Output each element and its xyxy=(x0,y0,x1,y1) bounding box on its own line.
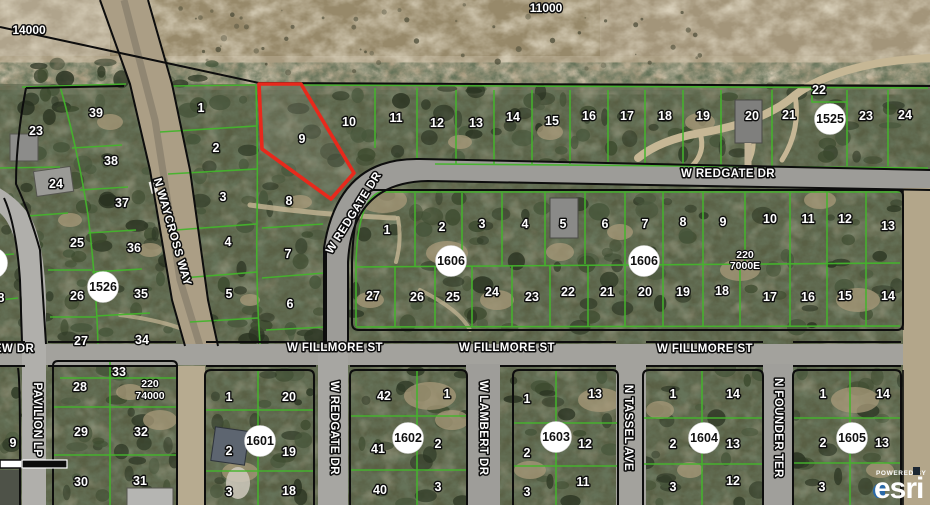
parcel-number-label: 14 xyxy=(726,387,740,401)
parcel-number-label: 13 xyxy=(726,437,740,451)
parcel-number-label: 6 xyxy=(287,297,294,311)
parcel-number-label: 13 xyxy=(469,116,483,130)
parcel-number-label: 29 xyxy=(74,425,88,439)
parcel-number-label: 1 xyxy=(198,101,205,115)
parcel-number-label: 31 xyxy=(133,474,147,488)
parcel-number-label: 13 xyxy=(588,387,602,401)
parcel-number-label: 42 xyxy=(377,389,391,403)
subdivision-circle: 1601 xyxy=(245,426,276,457)
parcel-number-label: 34 xyxy=(135,333,149,347)
subdivision-number: 1525 xyxy=(816,112,844,126)
scale-bar xyxy=(0,460,67,468)
parcel-number-label: 24 xyxy=(485,285,499,299)
parcel-number-label: 32 xyxy=(134,425,148,439)
parcel-number-label: 26 xyxy=(70,289,84,303)
street-name-label: N TASSEL AVE xyxy=(622,385,634,471)
parcel-number-label: 20 xyxy=(282,390,296,404)
parcel-number-label: 35 xyxy=(134,287,148,301)
subdivision-number: 1603 xyxy=(542,430,570,444)
subdivision-circle: 1606 xyxy=(629,246,660,277)
parcel-number-label: 33 xyxy=(112,365,126,379)
parcel-number-label: 20 xyxy=(638,285,652,299)
parcel-number-label: 7 xyxy=(285,247,292,261)
parcel-number-label: 16 xyxy=(582,109,596,123)
street-name-label: PAVILION LP xyxy=(31,383,43,458)
scale-annotation: 11000 xyxy=(530,1,563,15)
parcel-number-label: 21 xyxy=(600,285,614,299)
street-name-label: W FILLMORE ST xyxy=(459,342,555,354)
subdivision-circle: 1603 xyxy=(541,422,572,453)
parcel-number-label: 21 xyxy=(782,108,796,122)
parcel-number-label: 8 xyxy=(286,194,293,208)
street-name-label: EW DR xyxy=(0,343,34,355)
parcel-number-label: 18 xyxy=(282,484,296,498)
parcel-number-label: 2 xyxy=(439,220,446,234)
parcel-number-label: 10 xyxy=(342,115,356,129)
building-footprint xyxy=(0,470,20,505)
street-name-label: N FOUNDER TER xyxy=(772,378,784,478)
parcel-number-label: 8 xyxy=(680,215,687,229)
parcel-number-label: 3 xyxy=(226,485,233,499)
parcel-number-label: 39 xyxy=(89,106,103,120)
parcel-number-label: 23 xyxy=(525,290,539,304)
parcel-number-label: 18 xyxy=(715,284,729,298)
parcel-number-label: 2 xyxy=(226,444,233,458)
parcel-number-label: 11 xyxy=(576,475,589,489)
parcel-number-label: 3 xyxy=(819,480,826,494)
parcel-number-label: 20 xyxy=(745,109,759,123)
building-footprint xyxy=(127,488,173,505)
parcel-number-label: 37 xyxy=(115,196,129,210)
parcel-number-label: 40 xyxy=(373,483,387,497)
parcel-number-label: 28 xyxy=(73,380,87,394)
parcel-number-label: 12 xyxy=(578,437,592,451)
dimension-note: 220 xyxy=(141,378,159,390)
parcel-number-label: 12 xyxy=(838,212,852,226)
parcel-number-label: 13 xyxy=(875,436,889,450)
subdivision-circle: 1604 xyxy=(689,423,720,454)
parcel-number-label: 11 xyxy=(801,212,814,226)
parcel-number-label: 12 xyxy=(726,474,740,488)
parcel-number-label: 23 xyxy=(29,124,43,138)
parcel-number-label: 36 xyxy=(127,241,141,255)
subdivision-circle: 1606 xyxy=(436,246,467,277)
parcel-number-label: 18 xyxy=(658,109,672,123)
street-name-label: W LAMBERT DR xyxy=(477,381,489,476)
parcel-number-label: 7 xyxy=(642,217,649,231)
parcel-number-label: 8 xyxy=(0,291,5,305)
parcel-number-label: 14 xyxy=(876,387,890,401)
subdivision-circle: 1526 xyxy=(88,272,119,303)
parcel-number-label: 22 xyxy=(812,83,826,97)
parcel-number-label: 16 xyxy=(801,290,815,304)
subdivision-number: 1604 xyxy=(690,431,718,445)
parcel-number-label: 9 xyxy=(299,132,306,146)
parcel-number-label: 3 xyxy=(220,190,227,204)
parcel-number-label: 1 xyxy=(670,387,677,401)
parcel-number-label: 12 xyxy=(430,116,444,130)
subdivision-number: 1606 xyxy=(437,254,465,268)
subdivision-circle: 1525 xyxy=(815,104,846,135)
parcel-number-label: 24 xyxy=(898,108,912,122)
parcel-number-label: 19 xyxy=(282,445,296,459)
parcel-number-label: 2 xyxy=(435,437,442,451)
parcel-number-label: 30 xyxy=(74,475,88,489)
map-canvas: 152515261606160616011602160316041605 232… xyxy=(0,0,930,505)
subdivision-number: 1601 xyxy=(246,434,274,448)
parcel-number-label: 4 xyxy=(522,217,529,231)
parcel-number-label: 2 xyxy=(213,141,220,155)
parcel-number-label: 41 xyxy=(371,442,385,456)
subdivision-circle: 1605 xyxy=(837,423,868,454)
street-name-label: W REDGATE DR xyxy=(681,168,775,180)
parcel-number-label: 17 xyxy=(763,290,777,304)
parcel-number-label: 13 xyxy=(881,219,895,233)
parcel-number-label: 3 xyxy=(479,217,486,231)
building-footprint xyxy=(10,134,38,161)
subdivision-number: 1606 xyxy=(630,254,658,268)
esri-logo-text: esri xyxy=(874,472,923,505)
parcel-number-label: 17 xyxy=(620,109,634,123)
subdivision-number: 1605 xyxy=(838,431,866,445)
parcel-number-label: 38 xyxy=(104,154,118,168)
parcel-number-label: 14 xyxy=(506,110,520,124)
scale-annotation: 14000 xyxy=(12,23,46,37)
parcel-number-label: 1 xyxy=(384,223,391,237)
parcel-number-label: 22 xyxy=(561,285,575,299)
parcel-number-label: 4 xyxy=(225,235,232,249)
parcel-number-label: 2 xyxy=(820,436,827,450)
street-name-label: W FILLMORE ST xyxy=(657,343,753,355)
subdivision-number: 1526 xyxy=(89,280,117,294)
aerial-parcel-map[interactable]: 152515261606160616011602160316041605 232… xyxy=(0,0,930,505)
parcel-number-label: 1 xyxy=(524,392,531,406)
parcel-number-label: 24 xyxy=(49,177,63,191)
parcel-number-label: 10 xyxy=(763,212,777,226)
parcel-number-label: 19 xyxy=(696,109,710,123)
subdivision-circle: 1602 xyxy=(393,423,424,454)
subdivision-number: 1602 xyxy=(394,431,422,445)
parcel-number-label: 26 xyxy=(410,290,424,304)
parcel-number-label: 2 xyxy=(524,446,531,460)
parcel-number-label: 1 xyxy=(444,387,451,401)
parcel-number-label: 5 xyxy=(560,217,567,231)
parcel-number-label: 3 xyxy=(524,485,531,499)
parcel-number-label: 3 xyxy=(435,480,442,494)
dimension-note: 7000E xyxy=(730,260,760,272)
parcel-number-label: 6 xyxy=(602,217,609,231)
parcel-number-label: 15 xyxy=(545,114,559,128)
dimension-note: 74000 xyxy=(135,390,164,402)
parcel-number-label: 9 xyxy=(10,436,17,450)
parcel-number-label: 19 xyxy=(676,285,690,299)
parcel-number-label: 1 xyxy=(226,390,233,404)
street-name-label: W REDGATE DR xyxy=(328,381,340,475)
parcel-number-label: 3 xyxy=(670,480,677,494)
esri-attribution: POWERED BY esri xyxy=(873,467,927,505)
parcel-number-label: 11 xyxy=(389,111,402,125)
parcel-number-label: 9 xyxy=(720,215,727,229)
parcel-number-label: 25 xyxy=(446,290,460,304)
parcel-number-label: 1 xyxy=(820,387,827,401)
parcel-number-label: 27 xyxy=(74,334,88,348)
road-east-corridor xyxy=(903,188,930,505)
street-name-label: W FILLMORE ST xyxy=(287,342,383,354)
parcel-number-label: 2 xyxy=(670,437,677,451)
parcel-number-label: 5 xyxy=(226,287,233,301)
road-waycross-south xyxy=(177,366,205,505)
parcel-number-label: 27 xyxy=(366,289,380,303)
parcel-number-label: 23 xyxy=(859,109,873,123)
parcel-number-label: 15 xyxy=(838,289,852,303)
parcel-number-label: 25 xyxy=(70,236,84,250)
parcel-number-label: 14 xyxy=(881,289,895,303)
